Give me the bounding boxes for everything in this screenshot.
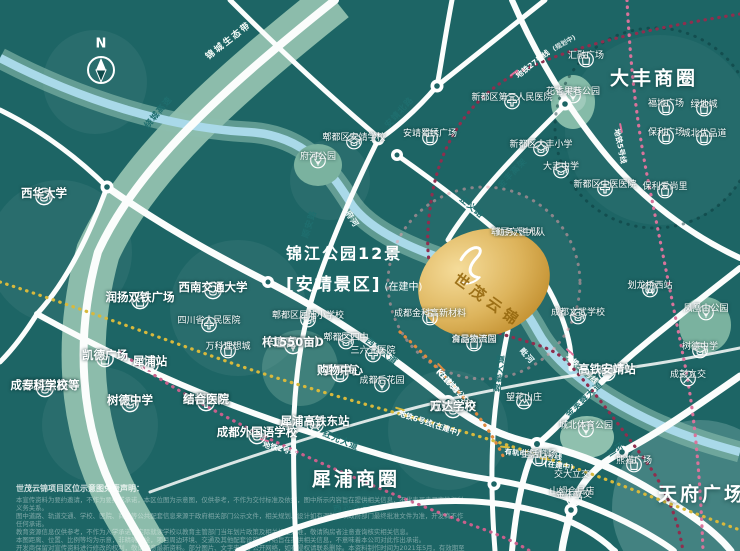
location-map: 大丰商圈犀浦商圈天府广场绕城高速锦城生态带安靖北路顺安路正义路金丰高架西华大道红…: [0, 0, 740, 551]
poi-label: 润扬双铁广场: [106, 291, 175, 304]
disclaimer-line: 本图距离、位置、比例等均为示意，非精确测绘，项目周边环境、交通及其他配套设施的介…: [16, 536, 468, 544]
poi-label: 郫都区安靖学校: [323, 133, 386, 144]
map-poi: 树德中学: [692, 342, 709, 359]
map-poi: 郫都中西结合医院: [197, 393, 216, 412]
map-poi: 西南交通大学: [204, 281, 223, 300]
map-poi: 成都纺织高等专科学校: [36, 379, 55, 398]
poi-label: 西南交通大学: [179, 281, 248, 294]
map-poi: 安靖蜀绣广场: [422, 129, 439, 146]
map-poi: 城北体育公园: [578, 421, 595, 438]
map-poi: 城北优品道: [696, 129, 713, 146]
poi-label: 新都区大丰小学: [510, 140, 573, 151]
park-callout: 锦江公园12景 [安靖景区](在建中): [286, 240, 422, 295]
map-poi: 新都区第三人民医院: [504, 93, 521, 110]
poi-label: 结合医院: [183, 393, 229, 406]
map-poi: 保利爱尚里: [657, 182, 674, 199]
callout-line1: 锦江公园12景: [286, 240, 422, 264]
poi-label: 西华大学: [21, 187, 67, 200]
poi-label: 万达学校: [430, 400, 476, 413]
poi-label: 郫都区犀浦小学校: [272, 311, 344, 322]
poi-label: 安靖蜀绣广场: [403, 129, 457, 140]
map-poi: 新都区中医医院: [597, 180, 614, 197]
poi-label: 府河公园: [300, 152, 336, 163]
map-poi: 汇融广场: [578, 51, 595, 68]
poi-label: 犀浦站: [133, 355, 168, 368]
map-poi: 成都后花园: [374, 376, 391, 393]
poi-label: 购物中心: [317, 364, 363, 377]
poi-label: 生活广场: [521, 450, 557, 461]
poi-label: 四川省人民医院: [178, 316, 241, 327]
compass-north-label: N: [96, 37, 107, 52]
poi-label: 保利广场: [648, 128, 684, 139]
poi-label: 成都文武学校: [551, 308, 605, 319]
map-poi: 郫都区安靖学校: [346, 133, 363, 150]
poi-label: 汇融广场: [568, 51, 604, 62]
poi-label: 熊猫广场: [616, 456, 652, 467]
map-poi: 海霸王西部食品物流园: [466, 335, 483, 352]
map-poi: 大丰中学: [553, 162, 570, 179]
map-poi: 成都外国语学校: [248, 426, 267, 445]
map-poi: 四川省人民医院: [201, 316, 218, 333]
poi-label: 郫都区四中: [324, 333, 369, 344]
poi-label: 三六三医院: [351, 346, 396, 357]
poi-label: 保利爱尚里: [643, 182, 688, 193]
map-poi: 梓潼宫TOD（1550亩）: [284, 336, 303, 355]
district-label: 天府广场: [658, 480, 740, 507]
map-poi: 高铁安靖站: [598, 363, 617, 382]
map-poi: 万科理想城: [220, 342, 237, 359]
poi-label: 万科理想城: [206, 342, 251, 353]
poi-label: 城北优品道: [682, 129, 727, 140]
poi-label: 新都区中医医院: [574, 180, 637, 191]
map-poi: 绿地城: [696, 100, 713, 117]
map-poi: 划龙桥西站: [642, 281, 659, 298]
map-poi: 凯德广场: [96, 349, 115, 368]
map-poi: 熊猫广场: [626, 456, 643, 473]
poi-label: 新都区第三人民医院: [472, 93, 553, 104]
poi-label: 勤务六中队: [496, 228, 541, 239]
map-poi: 福地广场: [658, 99, 675, 116]
map-poi: 三六三医院: [365, 346, 382, 363]
poi-label: 金牛立交: [556, 490, 592, 501]
callout-line2: [安靖景区]: [286, 270, 382, 295]
poi-label: 大丰中学: [543, 162, 579, 173]
disclaimer-title: 世茂云锦项目区位示意图免责声明：: [16, 483, 468, 494]
disclaimer-line: 本宣传资料为要约邀请，不作为要约或承诺，本区位图为示意图，仅供参考，不作为交付标…: [16, 496, 468, 512]
poi-label: 城北体育公园: [559, 421, 613, 432]
disclaimer-line: 图中道路、轨道交通、学校、医院、商业等公共配套信息来源于政府相关部门公示文件，相…: [16, 512, 468, 528]
map-poi: 成都七中万达学校: [444, 400, 463, 419]
map-poi: 犀浦高铁东站: [306, 415, 325, 434]
disclaimer-line: 教育资源信息仅供参考，不作为入学承诺，实际就读学校以教育主管部门当年划片政策及相…: [16, 528, 468, 536]
map-poi: 望花山庄: [516, 393, 533, 410]
map-poi: 郫都区犀浦小学校: [300, 311, 317, 328]
map-poi: 树德中学: [121, 394, 140, 413]
poi-label: 花香果巷公园: [546, 87, 600, 98]
map-poi: 保利广场: [658, 128, 675, 145]
map-poi: 润扬双铁广场: [131, 291, 150, 310]
district-label: 大丰商圈: [610, 64, 698, 91]
poi-label: 成彭立交: [670, 370, 706, 381]
disclaimer: 世茂云锦项目区位示意图免责声明： 本宣传资料为要约邀请，不作为要约或承诺，本区位…: [16, 483, 468, 551]
poi-label: 高铁安靖站: [578, 363, 636, 376]
poi-label: 凤凰山公园: [684, 304, 729, 315]
map-poi: 金牛立交: [566, 490, 583, 507]
callout-line3: (在建中): [385, 278, 423, 293]
map-poi: 成都文武学校: [570, 308, 587, 325]
poi-label: 划龙桥西站: [628, 281, 673, 292]
map-poi: 新都区大丰小学: [533, 140, 550, 157]
poi-label: 交大立交: [554, 470, 590, 481]
poi-label: 福地广场: [648, 99, 684, 110]
disclaimer-line: 开发商保留对宣传资料进行修改的权利，敬请留意最新资料。部分图片、文字来源于公开网…: [16, 544, 468, 551]
poi-label: 凯德广场: [82, 349, 128, 362]
poi-label: 绿地城: [691, 100, 718, 111]
poi-label: 成都后花园: [360, 376, 405, 387]
map-poi: 犀浦站: [141, 355, 160, 374]
map-poi: 花香果巷公园: [565, 87, 582, 104]
map-poi: 华侨城生活广场: [531, 450, 548, 467]
poi-label: 成都金科高新材料: [394, 309, 466, 320]
map-poi: 西华大学: [35, 187, 54, 206]
poi-label: 树德中学: [682, 342, 718, 353]
poi-label: 望花山庄: [506, 393, 542, 404]
poi-label: 树德中学: [107, 394, 153, 407]
map-poi: 府河公园: [310, 152, 327, 169]
poi-label: 犀浦高铁东站: [281, 415, 350, 428]
map-poi: 成都金科高新材料: [422, 309, 439, 326]
poi-label: 专科学校: [22, 379, 68, 392]
poi-label: 食品物流园: [452, 335, 497, 346]
poi-label: （1550亩）: [260, 336, 327, 349]
map-poi: 凤凰山公园: [698, 304, 715, 321]
map-poi: 爱琴海购物中心: [331, 364, 350, 383]
map-poi: 成彭立交: [680, 370, 697, 387]
